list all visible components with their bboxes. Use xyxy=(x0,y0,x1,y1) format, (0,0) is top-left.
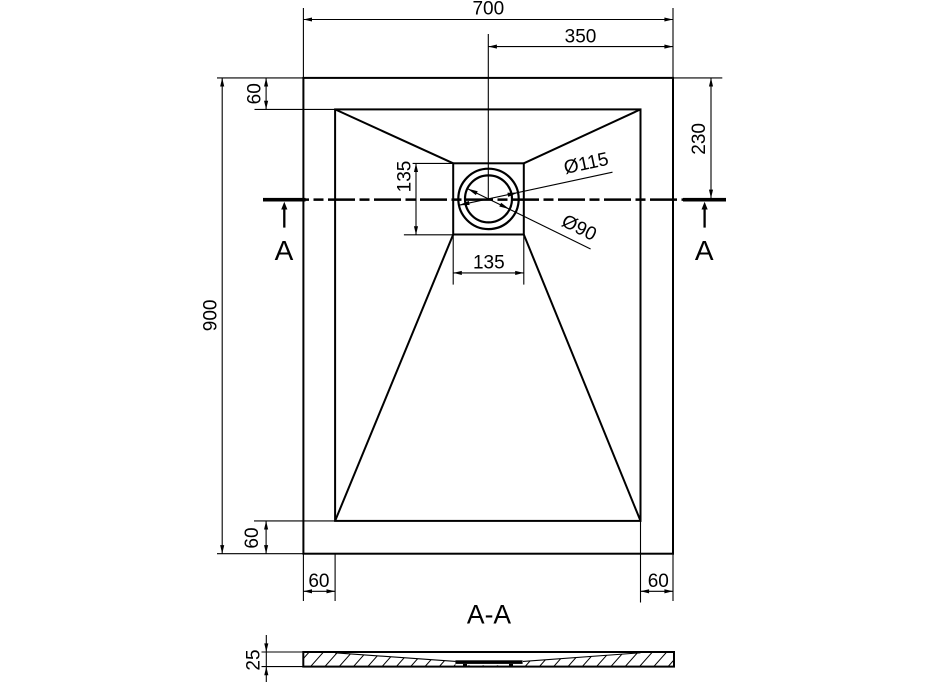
svg-text:A-A: A-A xyxy=(467,600,512,630)
svg-text:350: 350 xyxy=(565,27,597,48)
svg-text:135: 135 xyxy=(473,253,505,274)
svg-text:A: A xyxy=(275,235,294,266)
svg-text:60: 60 xyxy=(242,527,263,548)
svg-text:60: 60 xyxy=(308,571,329,592)
svg-text:700: 700 xyxy=(472,0,504,20)
svg-text:A: A xyxy=(695,235,714,266)
svg-text:60: 60 xyxy=(648,571,669,592)
svg-text:230: 230 xyxy=(689,123,710,155)
svg-text:25: 25 xyxy=(244,649,265,670)
svg-text:900: 900 xyxy=(201,300,222,332)
svg-text:135: 135 xyxy=(394,161,415,193)
svg-text:60: 60 xyxy=(245,83,266,104)
